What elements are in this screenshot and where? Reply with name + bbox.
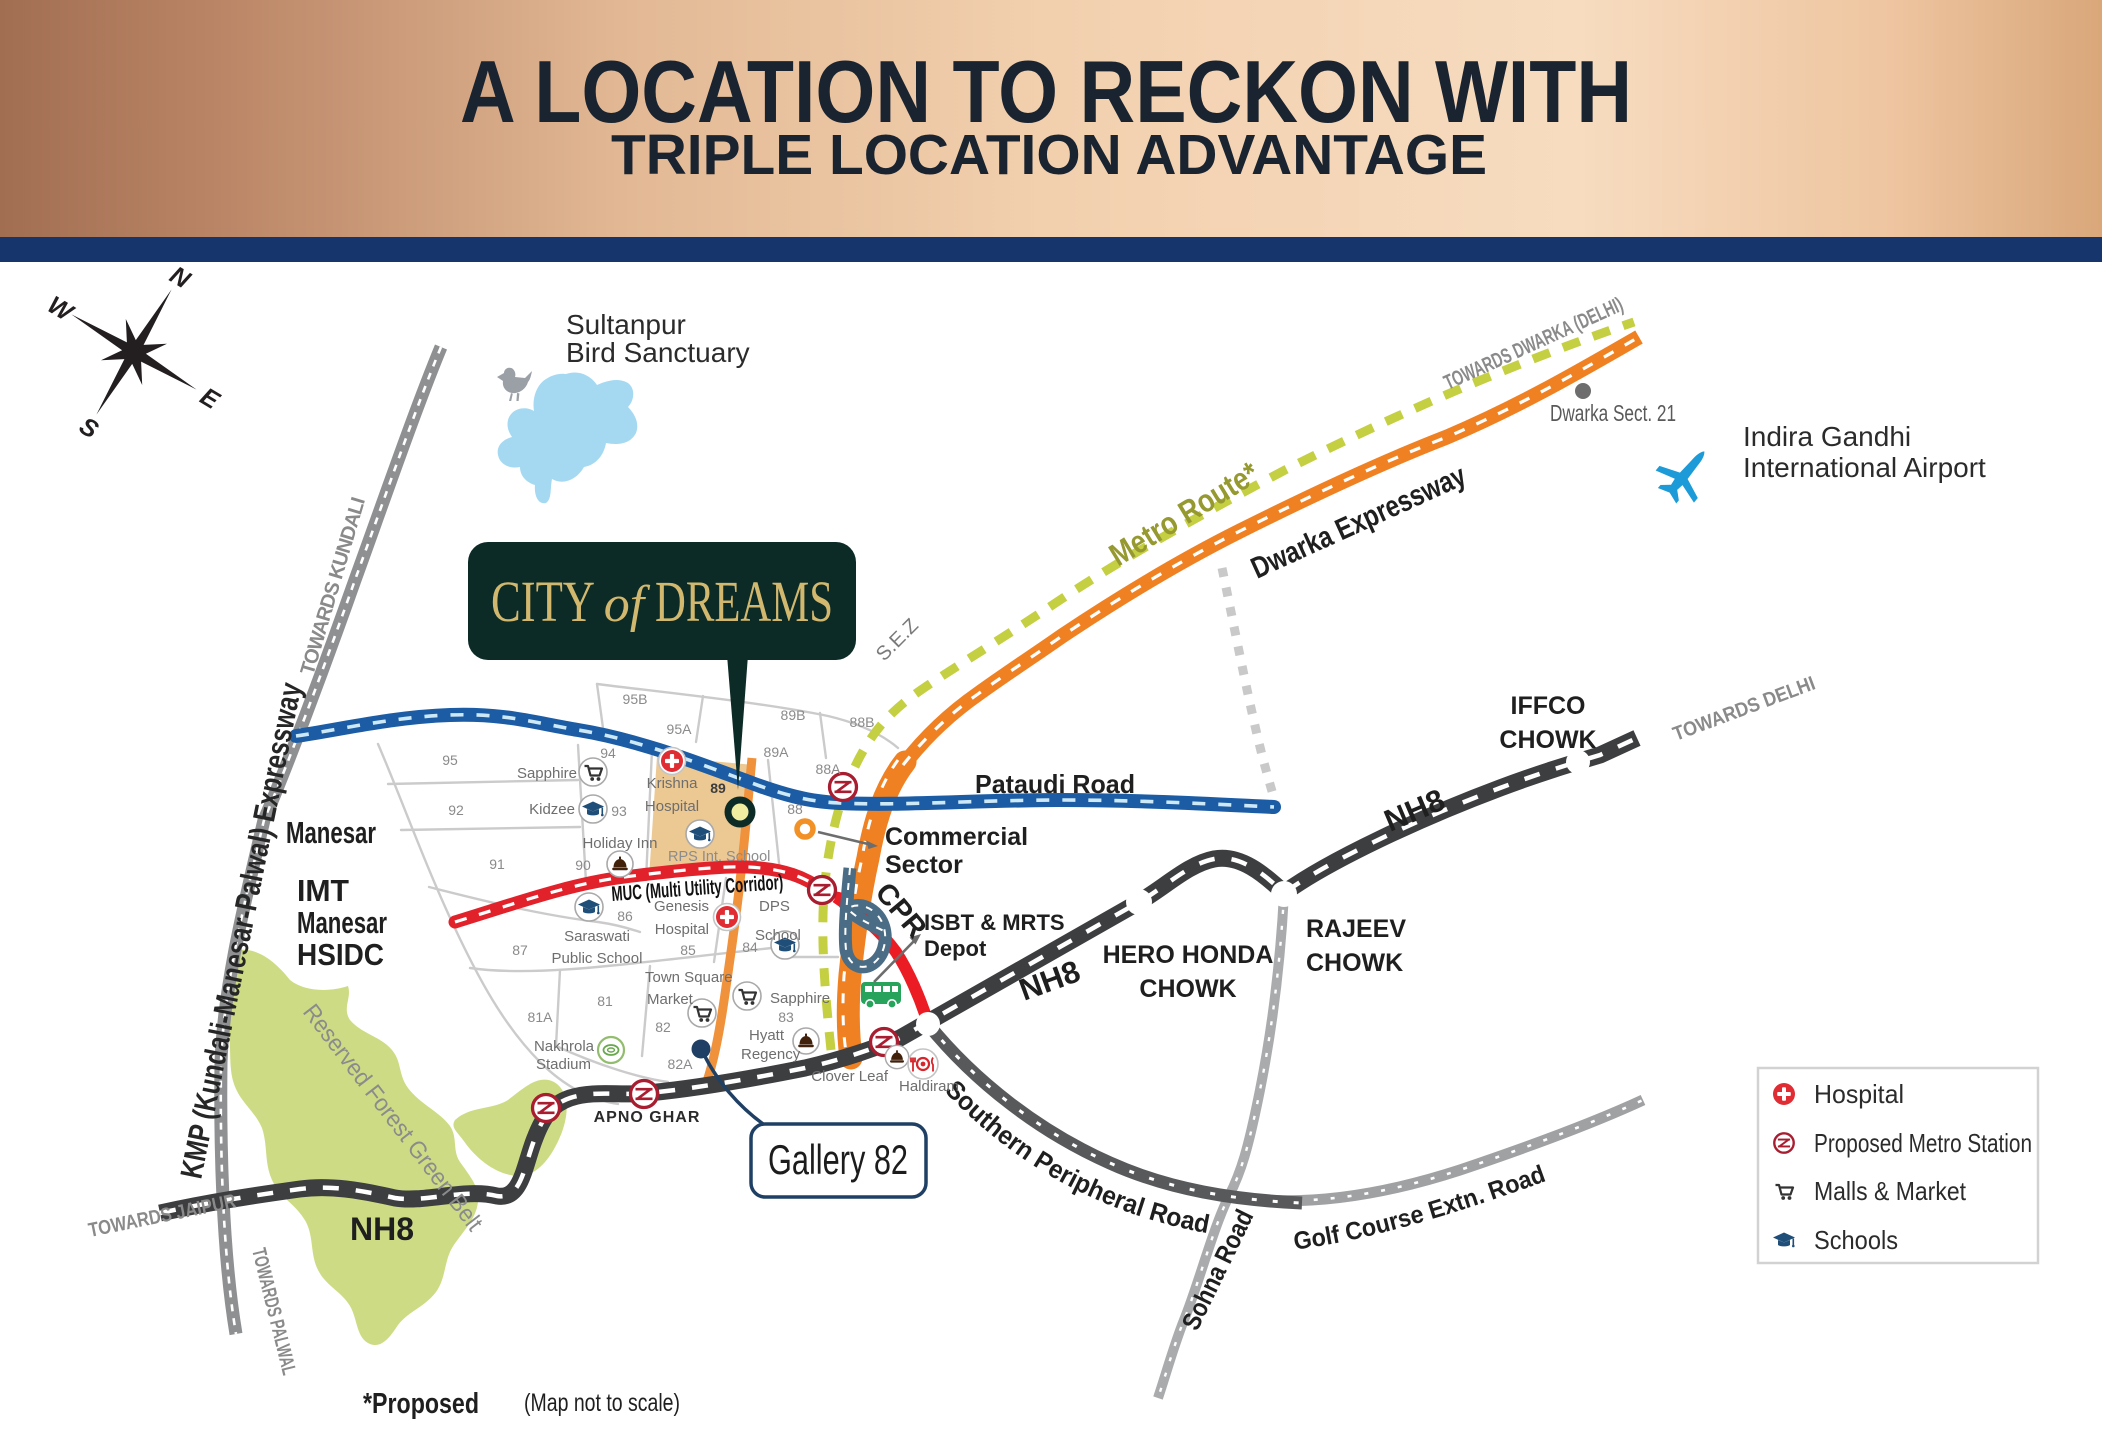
svg-text:of: of (604, 576, 651, 633)
svg-text:International Airport: International Airport (1743, 452, 1986, 483)
svg-text:CHOWK: CHOWK (1499, 726, 1596, 754)
svg-text:83: 83 (778, 1009, 794, 1025)
svg-text:Haldiram: Haldiram (899, 1078, 959, 1095)
svg-text:Manesar: Manesar (297, 905, 387, 940)
svg-text:Town Square: Town Square (645, 969, 733, 986)
svg-text:Gallery 82: Gallery 82 (768, 1136, 908, 1183)
svg-text:APNO GHAR: APNO GHAR (594, 1109, 701, 1126)
svg-text:81A: 81A (528, 1009, 554, 1025)
svg-text:85: 85 (680, 942, 696, 958)
svg-text:89: 89 (710, 780, 726, 796)
svg-text:School: School (755, 927, 801, 944)
svg-text:90: 90 (575, 857, 591, 873)
svg-text:IMT: IMT (297, 873, 349, 908)
svg-text:Hyatt: Hyatt (749, 1027, 785, 1044)
svg-text:HSIDC: HSIDC (297, 937, 384, 972)
svg-text:Malls & Market: Malls & Market (1814, 1176, 1967, 1206)
svg-text:Dwarka Sect. 21: Dwarka Sect. 21 (1550, 400, 1676, 426)
svg-text:Sector: Sector (885, 851, 963, 879)
svg-text:Nakhrola: Nakhrola (534, 1038, 595, 1055)
svg-text:81: 81 (597, 993, 613, 1009)
svg-text:CHOWK: CHOWK (1139, 975, 1236, 1003)
svg-text:Proposed Metro Station: Proposed Metro Station (1814, 1128, 2032, 1158)
svg-text:Sapphire: Sapphire (770, 990, 830, 1007)
svg-text:Depot: Depot (924, 936, 987, 961)
svg-text:Hospital: Hospital (645, 798, 699, 815)
svg-text:87: 87 (512, 942, 528, 958)
svg-text:IFFCO: IFFCO (1511, 692, 1586, 720)
svg-text:DPS: DPS (759, 898, 790, 915)
svg-text:91: 91 (489, 856, 505, 872)
svg-text:Hospital: Hospital (1814, 1079, 1904, 1109)
svg-text:Regency: Regency (741, 1046, 801, 1063)
svg-text:Commercial: Commercial (885, 823, 1028, 851)
svg-text:NH8: NH8 (350, 1211, 414, 1247)
svg-text:95: 95 (442, 752, 458, 768)
svg-text:Krishna: Krishna (647, 775, 699, 792)
svg-text:Genesis: Genesis (654, 898, 709, 915)
svg-text:88A: 88A (816, 761, 842, 777)
svg-text:HERO HONDA: HERO HONDA (1103, 941, 1274, 969)
svg-text:DREAMS: DREAMS (655, 569, 833, 634)
svg-text:*Proposed: *Proposed (363, 1388, 479, 1420)
svg-text:88: 88 (787, 801, 803, 817)
svg-text:Kidzee: Kidzee (529, 801, 575, 818)
svg-text:88B: 88B (850, 714, 875, 730)
svg-text:95B: 95B (623, 691, 648, 707)
svg-text:Sultanpur: Sultanpur (566, 309, 686, 340)
svg-text:RPS Int. School: RPS Int. School (668, 849, 770, 865)
svg-text:92: 92 (448, 802, 464, 818)
svg-text:86: 86 (617, 908, 633, 924)
svg-text:Manesar: Manesar (286, 815, 376, 850)
svg-text:89A: 89A (764, 744, 790, 760)
svg-text:Indira Gandhi: Indira Gandhi (1743, 421, 1911, 452)
svg-text:CITY: CITY (491, 569, 595, 634)
svg-text:89B: 89B (781, 707, 806, 723)
svg-text:Pataudi Road: Pataudi Road (975, 769, 1135, 799)
svg-text:95A: 95A (667, 721, 693, 737)
svg-text:94: 94 (600, 745, 616, 761)
svg-text:82A: 82A (668, 1056, 694, 1072)
svg-text:Public School: Public School (552, 950, 643, 967)
svg-text:ISBT & MRTS: ISBT & MRTS (924, 910, 1065, 935)
svg-text:82: 82 (655, 1019, 671, 1035)
svg-text:Saraswati: Saraswati (564, 928, 630, 945)
svg-text:(Map not to scale): (Map not to scale) (524, 1389, 680, 1417)
svg-text:Clover Leaf: Clover Leaf (811, 1068, 889, 1085)
svg-text:Stadium: Stadium (536, 1056, 591, 1073)
svg-text:93: 93 (611, 803, 627, 819)
svg-text:RAJEEV: RAJEEV (1306, 915, 1406, 943)
svg-text:Holiday Inn: Holiday Inn (582, 835, 657, 852)
svg-text:TRIPLE LOCATION ADVANTAGE: TRIPLE LOCATION ADVANTAGE (611, 123, 1487, 187)
svg-text:Schools: Schools (1814, 1225, 1898, 1255)
svg-text:Market: Market (647, 991, 694, 1008)
svg-text:CHOWK: CHOWK (1306, 949, 1403, 977)
svg-text:Bird Sanctuary: Bird Sanctuary (566, 337, 750, 368)
svg-text:Sapphire: Sapphire (517, 765, 577, 782)
svg-text:Hospital: Hospital (655, 921, 709, 938)
